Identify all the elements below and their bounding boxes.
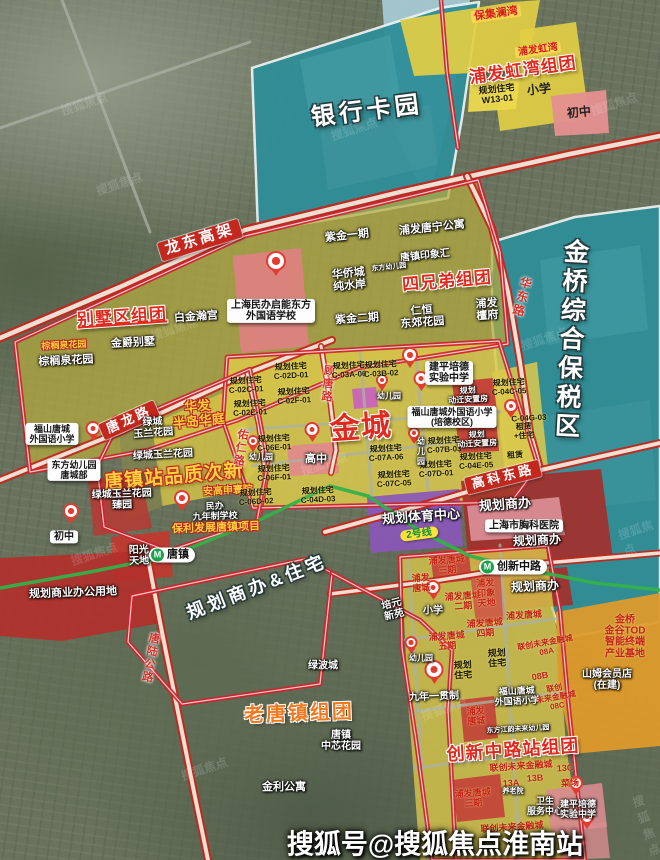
zone-chuzhong-parcel-top [551,90,609,136]
zone-qineng-school-parcel [233,248,309,353]
minor-road-1 [62,0,150,232]
road-唐陆公路 [146,548,208,860]
zone-pufa-red-parcel-4 [452,774,505,822]
minor-road-0 [0,42,250,128]
map-layers [0,0,660,860]
map-canvas[interactable]: 保集澜湾浦发虹湾浦发虹湾组团规划住宅 W13-01小学初中银行卡园龙东高架别墅区… [0,0,660,860]
zone-w13-parcel [468,78,520,112]
zone-dongqian-parcel-2 [456,419,499,453]
zone-fta-inner1 [540,245,648,345]
zone-dongqian-parcel-1 [452,378,497,415]
